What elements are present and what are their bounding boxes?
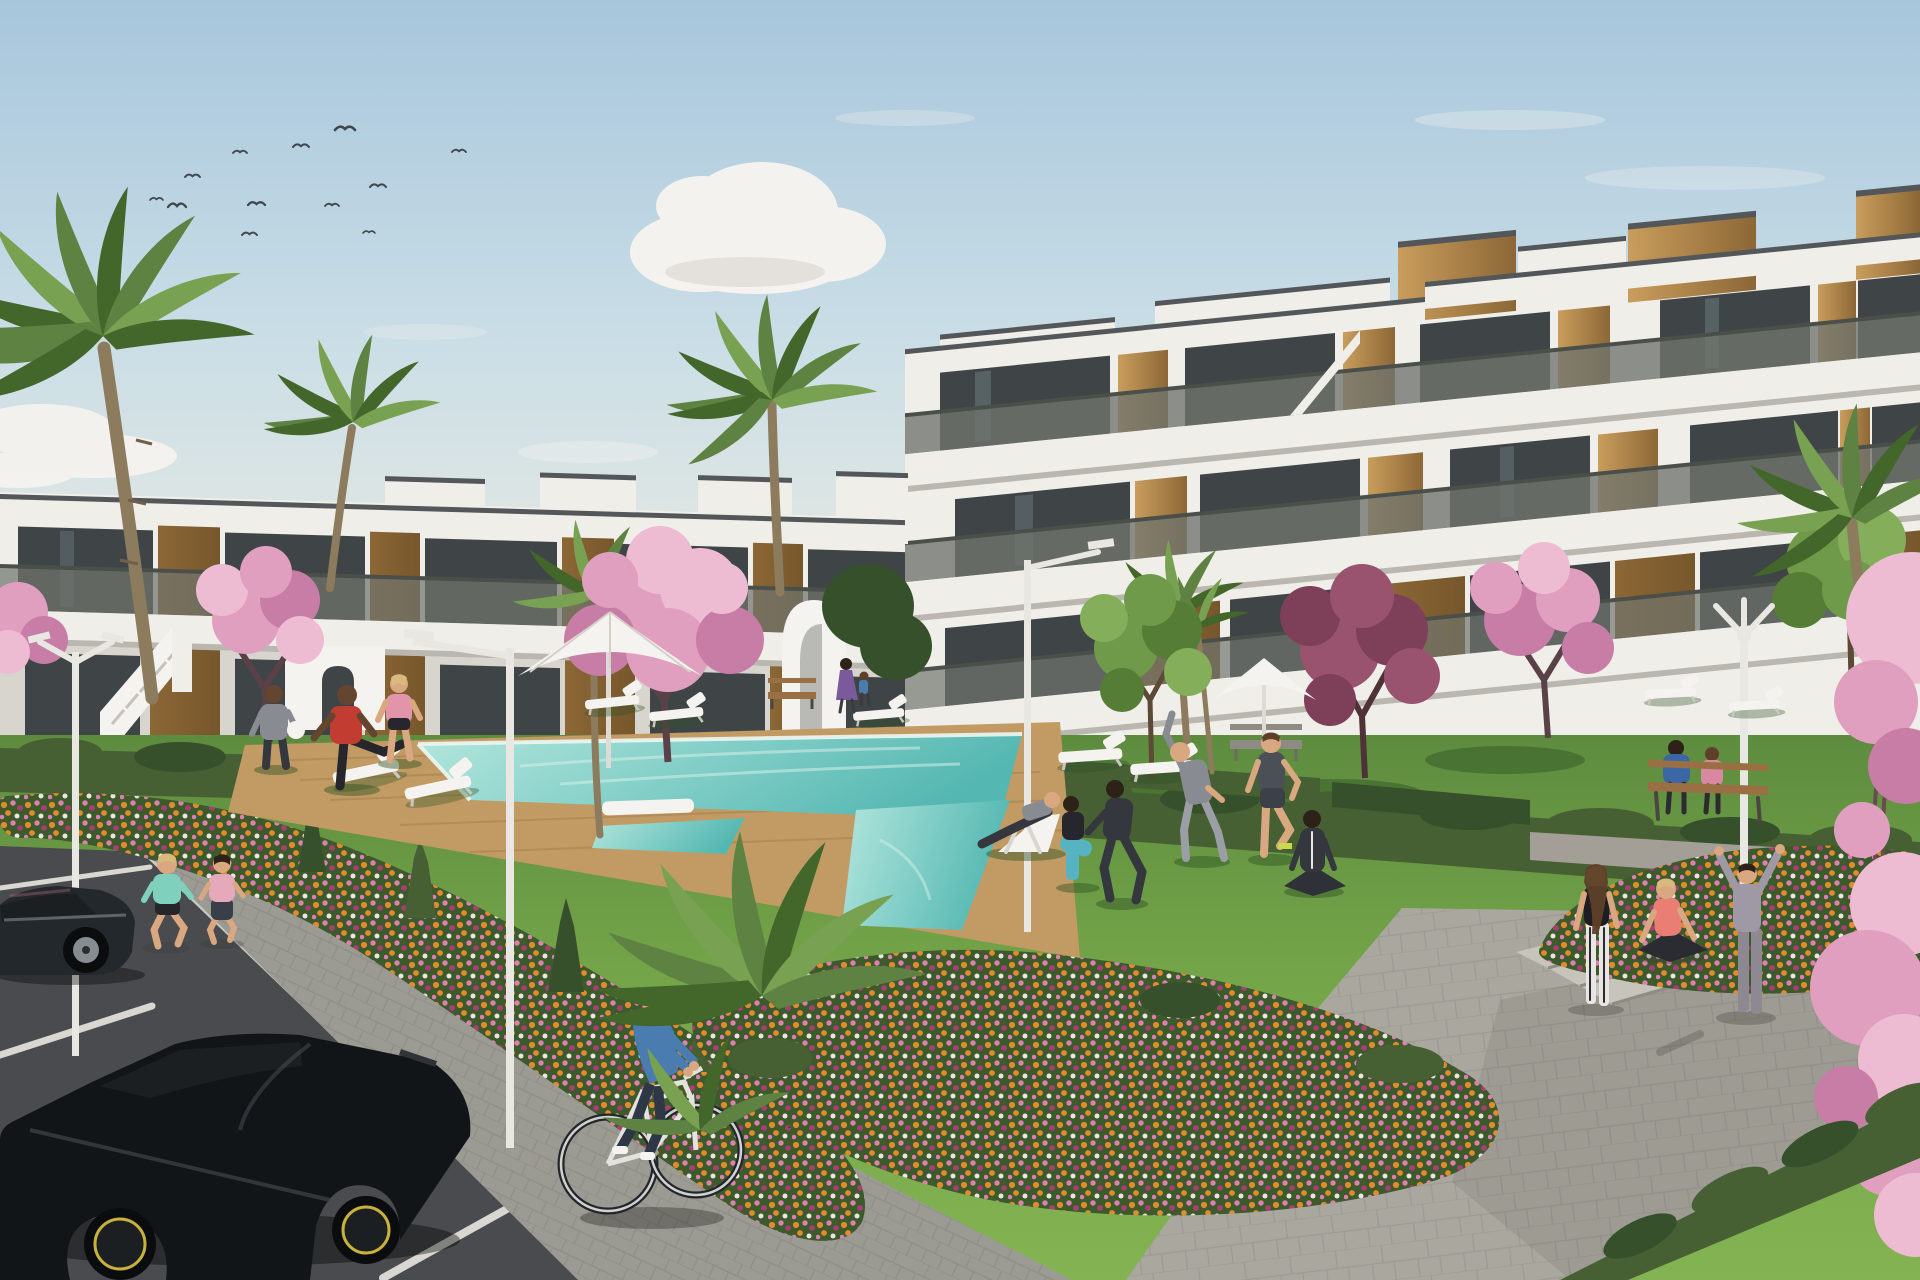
rendering-stage (0, 0, 1920, 1280)
apartment-complex-rendering (0, 0, 1920, 1280)
